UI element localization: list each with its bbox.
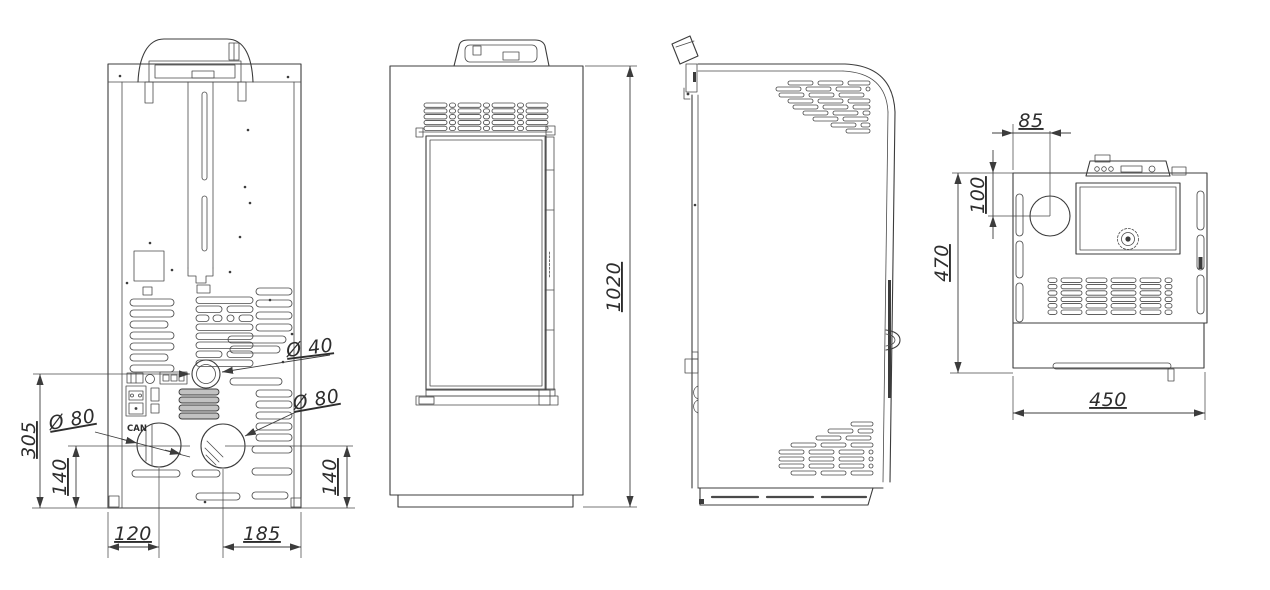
- vent-slot: [779, 93, 804, 97]
- vent-slot: [1165, 310, 1172, 314]
- vent-slot: [213, 315, 222, 322]
- vent-slot: [526, 103, 548, 107]
- top-view: 85 100 470 450: [931, 110, 1207, 420]
- vent-slot: [843, 117, 868, 121]
- vent-slot: [256, 390, 292, 397]
- panel-button: [1109, 167, 1114, 172]
- vent-slot: [130, 299, 174, 306]
- vent-slot: [196, 324, 253, 331]
- vent-slot: [239, 315, 253, 322]
- vent-slot: [526, 120, 548, 124]
- vent-slot: [484, 109, 490, 113]
- vent-slot: [230, 378, 282, 385]
- panel-button: [1095, 167, 1100, 172]
- vent-slot: [853, 105, 870, 109]
- top-vent-grid: [1048, 278, 1172, 314]
- vent-slot: [1111, 297, 1136, 301]
- vent-slot: [492, 120, 515, 124]
- vent-slot: [450, 115, 456, 119]
- front-door-window: [416, 136, 558, 405]
- vent-slot: [458, 126, 481, 130]
- vent-slot: [130, 343, 174, 350]
- rear-view: CAN 305 140 140: [18, 39, 355, 558]
- vent-slot: [1111, 291, 1136, 295]
- vent-slot: [776, 87, 801, 91]
- panel-knob: [1149, 166, 1155, 172]
- vent-slot: [851, 422, 873, 426]
- vent-slot: [252, 446, 292, 453]
- vent-slot: [256, 300, 292, 307]
- vent-slot: [458, 120, 481, 124]
- vent-slot: [1061, 284, 1082, 288]
- vent-slot: [492, 115, 515, 119]
- vent-slot: [1165, 284, 1172, 288]
- vent-slot: [839, 450, 864, 454]
- vent-slot: [450, 109, 456, 113]
- dim-120: 120: [114, 523, 152, 545]
- vent-slot: [484, 120, 490, 124]
- dim-85: 85: [1018, 110, 1043, 132]
- door-sill: [416, 396, 558, 405]
- open-hopper-lid: [672, 36, 698, 99]
- vent-slot: [424, 115, 447, 119]
- vent-slot: [450, 103, 456, 107]
- vent-slot: [779, 450, 804, 454]
- vent-slot: [839, 93, 864, 97]
- hopper-lid-top: [1076, 183, 1180, 254]
- vent-slot: [518, 109, 524, 113]
- vent-slot: [196, 360, 253, 367]
- vent-slot: [1140, 310, 1161, 314]
- front-plinth: [398, 495, 573, 507]
- vent-slot: [518, 103, 524, 107]
- vent-slot: [813, 117, 838, 121]
- technical-drawing-page: CAN 305 140 140: [0, 0, 1270, 590]
- vent-slot: [130, 365, 174, 372]
- vent-slot: [179, 413, 219, 419]
- vent-slot: [861, 123, 870, 127]
- door-glass-edge: [888, 280, 891, 398]
- vent-slot: [484, 115, 490, 119]
- vent-slot: [196, 297, 253, 304]
- vent-slot: [828, 429, 853, 433]
- vent-slot: [1061, 291, 1082, 295]
- vent-slot: [1165, 291, 1172, 295]
- rear-connectors: CAN: [126, 372, 187, 434]
- vent-slot: [1086, 310, 1107, 314]
- dim-140-left: 140: [49, 458, 71, 496]
- vent-slot: [256, 412, 292, 419]
- vent-slot: [1086, 284, 1107, 288]
- vent-slot: [779, 457, 804, 461]
- vent-slot: [846, 129, 870, 133]
- dim-470: 470: [931, 244, 953, 282]
- vent-slot: [818, 81, 843, 85]
- vent-slot: [256, 288, 292, 295]
- vent-slot: [1048, 297, 1057, 301]
- fuse-holder: [151, 388, 159, 401]
- vent-slot: [484, 126, 490, 130]
- rear-left-vents: [130, 299, 174, 372]
- vent-slot: [424, 109, 447, 113]
- vent-slot: [450, 126, 456, 130]
- vent-slot: [526, 126, 548, 130]
- vent-slot: [831, 123, 856, 127]
- vent-slot: [484, 103, 490, 107]
- dia-80-left-label: Ø 80: [46, 405, 97, 435]
- panel-display: [1121, 166, 1142, 172]
- vent-slot: [1086, 297, 1107, 301]
- vent-slot: [803, 111, 828, 115]
- vent-slot: [1140, 278, 1161, 282]
- rear-lid-handle: [138, 39, 253, 103]
- vent-slot: [196, 306, 222, 313]
- vent-slot: [791, 471, 816, 475]
- rear-junction-box: [134, 251, 164, 281]
- side-top-vents: [776, 81, 870, 133]
- vent-slot: [821, 443, 846, 447]
- vent-slot: [179, 397, 219, 403]
- vent-slot: [424, 103, 447, 107]
- vent-slot: [851, 471, 873, 475]
- vent-slot: [256, 423, 292, 430]
- dim-140-right: 140: [319, 458, 341, 496]
- vent-slot: [1048, 291, 1057, 295]
- vent-slot: [1165, 304, 1172, 308]
- vent-slot: [839, 457, 864, 461]
- vent-slot: [793, 105, 818, 109]
- vent-slot: [1140, 291, 1161, 295]
- vent-slot: [196, 351, 222, 358]
- vent-slot: [252, 492, 288, 499]
- vent-slot: [863, 111, 870, 115]
- can-port-label: CAN: [127, 424, 147, 434]
- dia-80-right-label: Ø 80: [290, 385, 341, 415]
- side-bottom-vents: [779, 422, 873, 475]
- vent-slot: [1165, 278, 1172, 282]
- vent-slot: [1048, 284, 1057, 288]
- vent-slot: [1061, 310, 1082, 314]
- vent-slot: [256, 324, 292, 331]
- vent-slot: [227, 315, 234, 322]
- vent-slot: [192, 470, 220, 477]
- vent-slot: [1048, 304, 1057, 308]
- panel-button: [1102, 167, 1107, 172]
- vent-slot: [869, 450, 873, 454]
- vent-slot: [1111, 284, 1136, 288]
- vent-slot: [809, 93, 834, 97]
- vent-slot: [256, 312, 292, 319]
- vent-slot: [818, 99, 843, 103]
- pellet-stove-dimension-drawing: CAN 305 140 140: [0, 0, 1270, 590]
- vent-slot: [1086, 291, 1107, 295]
- vent-slot: [518, 120, 524, 124]
- vent-slot: [1061, 304, 1082, 308]
- vent-slot: [526, 115, 548, 119]
- vent-slot: [846, 436, 871, 440]
- vent-slot: [823, 105, 848, 109]
- vent-slot: [130, 332, 174, 339]
- vent-slot: [196, 315, 209, 322]
- vent-slot: [256, 401, 292, 408]
- top-dimensions: 85 100 470 450: [931, 110, 1205, 420]
- vent-slot: [450, 120, 456, 124]
- vent-slot: [196, 493, 240, 500]
- vent-slot: [851, 443, 873, 447]
- vent-slot: [256, 434, 292, 441]
- vent-slot: [869, 457, 873, 461]
- dim-185: 185: [243, 523, 281, 545]
- dim-1020: 1020: [603, 262, 625, 312]
- vent-slot: [458, 103, 481, 107]
- vent-slot: [788, 99, 813, 103]
- vent-slot: [424, 126, 447, 130]
- vent-slot: [227, 306, 253, 313]
- vent-slot: [809, 464, 834, 468]
- vent-slot: [492, 109, 515, 113]
- vent-slot: [869, 464, 873, 468]
- dia-40-label: Ø 40: [284, 334, 334, 362]
- side-base: [698, 488, 883, 505]
- vent-slot: [1086, 304, 1107, 308]
- rear-exhaust-fins: [179, 389, 219, 419]
- vent-slot: [458, 115, 481, 119]
- vent-slot: [816, 436, 841, 440]
- front-view: 1020: [390, 40, 637, 507]
- vent-slot: [1048, 278, 1057, 282]
- vent-slot: [1061, 297, 1082, 301]
- vent-slot: [848, 81, 870, 85]
- vent-slot: [788, 81, 813, 85]
- rear-middle-vents: [196, 297, 253, 367]
- vent-slot: [1111, 310, 1136, 314]
- vent-slot: [179, 389, 219, 395]
- vent-slot: [1061, 278, 1082, 282]
- vent-slot: [1111, 278, 1136, 282]
- vent-slot: [821, 471, 846, 475]
- dim-305: 305: [18, 421, 40, 459]
- side-view: [672, 36, 900, 505]
- vent-slot: [518, 115, 524, 119]
- vent-slot: [130, 321, 168, 328]
- rear-center-channel: [188, 82, 213, 293]
- rear-dimensions: 305 140 140 120 185 Ø 40 Ø 80 Ø 80: [18, 334, 355, 558]
- top-front-section: [1013, 323, 1204, 368]
- vent-slot: [458, 109, 481, 113]
- vent-slot: [1111, 304, 1136, 308]
- top-body-outline: [1013, 173, 1207, 323]
- vent-slot: [779, 464, 804, 468]
- vent-slot: [1086, 278, 1107, 282]
- vent-slot: [1140, 284, 1161, 288]
- vent-slot: [791, 443, 816, 447]
- front-grille: [424, 103, 548, 131]
- vent-slot: [836, 87, 861, 91]
- vent-slot: [1140, 304, 1161, 308]
- vent-slot: [809, 450, 834, 454]
- vent-slot: [130, 354, 168, 361]
- vent-slot: [809, 457, 834, 461]
- vent-slot: [1165, 297, 1172, 301]
- vent-slot: [518, 126, 524, 130]
- front-dimensions: 1020: [583, 66, 637, 507]
- dim-100: 100: [967, 176, 989, 214]
- vent-slot: [806, 87, 831, 91]
- vent-slot: [833, 111, 858, 115]
- vent-slot: [492, 103, 515, 107]
- vent-slot: [252, 468, 292, 475]
- vent-slot: [526, 109, 548, 113]
- vent-slot: [230, 346, 280, 353]
- vent-slot: [492, 126, 515, 130]
- dim-450: 450: [1089, 389, 1127, 411]
- vent-slot: [130, 310, 174, 317]
- vent-slot: [179, 405, 219, 411]
- vent-slot: [1048, 310, 1057, 314]
- thermostat-port: [146, 375, 155, 384]
- vent-slot: [424, 120, 447, 124]
- vent-slot: [848, 99, 870, 103]
- vent-slot: [132, 470, 180, 477]
- vent-slot: [858, 429, 873, 433]
- vent-slot: [1140, 297, 1161, 301]
- vent-slot: [866, 87, 870, 91]
- screw-dots: [119, 75, 294, 504]
- vent-slot: [839, 464, 864, 468]
- front-lid-handle: [454, 40, 549, 66]
